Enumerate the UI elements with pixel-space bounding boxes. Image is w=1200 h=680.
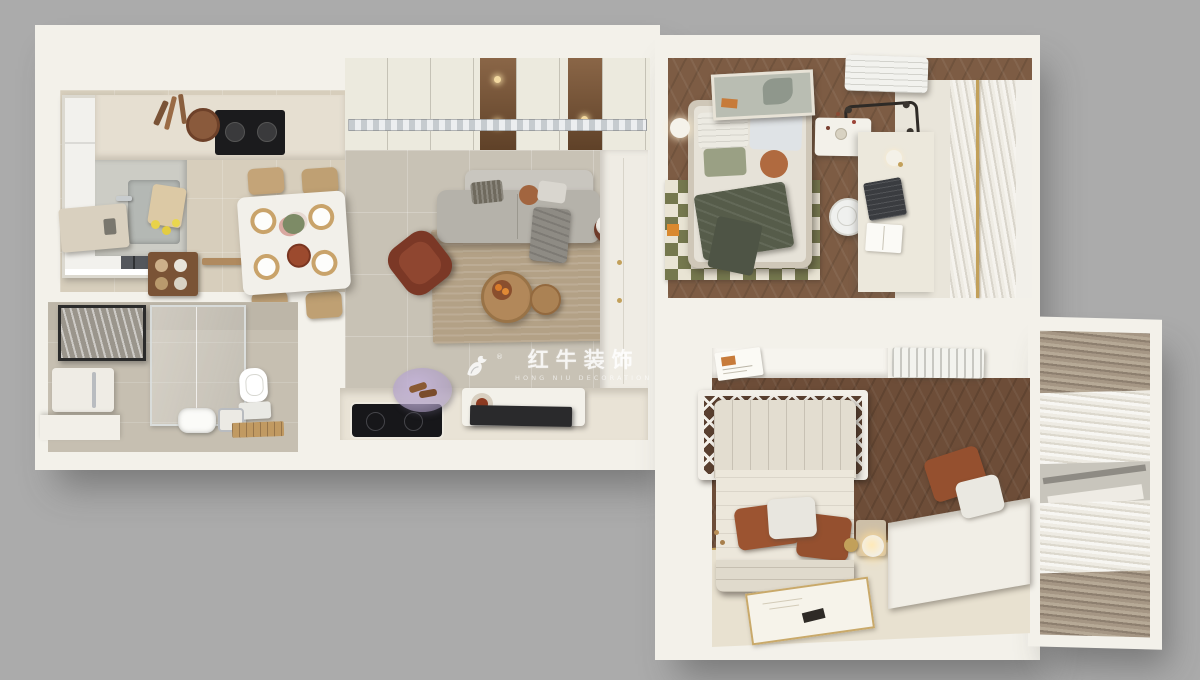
desk bbox=[858, 132, 934, 292]
place-setting bbox=[307, 203, 335, 231]
registered-mark: ® bbox=[496, 353, 503, 361]
light-bulb bbox=[845, 106, 852, 113]
spice-jar bbox=[174, 277, 187, 290]
lemon bbox=[162, 226, 171, 235]
dining-table bbox=[237, 190, 352, 295]
stool-ring bbox=[837, 206, 857, 226]
light-bulb bbox=[903, 101, 910, 108]
induction-zone bbox=[404, 412, 423, 431]
art-accent bbox=[721, 98, 738, 108]
slipper bbox=[419, 388, 438, 398]
rug-accent-square bbox=[667, 224, 679, 236]
toilet-lid-line bbox=[245, 374, 264, 397]
open-book bbox=[865, 223, 903, 253]
food-dish bbox=[286, 243, 312, 269]
bull-logo-icon bbox=[462, 351, 492, 381]
watermark: ® 红牛装饰 HONG NIU DECORATION bbox=[462, 350, 652, 382]
watermark-brand-en: HONG NIU DECORATION bbox=[515, 374, 652, 382]
ac-unit bbox=[844, 55, 928, 94]
plate bbox=[257, 257, 276, 276]
orange-fruit bbox=[502, 288, 509, 295]
spice-rack bbox=[148, 252, 198, 296]
woven-pillow bbox=[470, 179, 504, 204]
cabinet-handle bbox=[617, 260, 622, 265]
lemon bbox=[151, 220, 160, 229]
lamp-arm-joint bbox=[898, 162, 903, 167]
bedside-lamp1 bbox=[670, 118, 690, 138]
faucet bbox=[116, 196, 132, 201]
copper-pot bbox=[186, 108, 220, 142]
burner bbox=[257, 122, 277, 142]
apartment-3d-floorplan-render: ® 红牛装饰 HONG NIU DECORATION bbox=[0, 0, 1200, 680]
rattan-coffee-table bbox=[481, 271, 533, 323]
terracotta-cushion bbox=[760, 150, 788, 178]
white-pillow bbox=[767, 496, 818, 539]
gold-dish bbox=[844, 538, 858, 552]
window-sill bbox=[1016, 80, 1032, 298]
armchair-seat bbox=[394, 237, 446, 289]
vase bbox=[835, 128, 847, 140]
light-pillow bbox=[537, 180, 568, 204]
dried-branch bbox=[714, 530, 719, 535]
bedroom1-curtains bbox=[950, 80, 1016, 298]
wash-basin bbox=[178, 408, 216, 433]
wood-bath-mat bbox=[232, 421, 284, 438]
plate bbox=[254, 211, 273, 230]
magazine-photo bbox=[721, 356, 736, 367]
towel-rail bbox=[92, 372, 96, 408]
heater-display bbox=[103, 218, 116, 235]
burner bbox=[225, 122, 245, 142]
glass-stool bbox=[393, 368, 452, 412]
brass-curtain-rod bbox=[976, 80, 979, 298]
sage-pillow bbox=[703, 147, 746, 177]
lemon bbox=[172, 219, 180, 227]
sofa-seam bbox=[517, 194, 518, 239]
flower-centerpiece bbox=[282, 213, 305, 234]
watermark-brand-cn: 红牛装饰 bbox=[528, 350, 640, 371]
toilet-seat bbox=[239, 367, 269, 402]
bronze-wall-strip bbox=[480, 58, 516, 150]
magazine-line bbox=[723, 370, 747, 374]
green-throw-drape bbox=[707, 216, 763, 276]
bed2-headboard-cushions bbox=[714, 400, 856, 478]
bedside-lamp2-lit bbox=[862, 535, 884, 557]
bathroom-window bbox=[58, 305, 146, 361]
orange-fruit bbox=[495, 284, 502, 291]
tray-item bbox=[802, 608, 826, 623]
dried-branch bbox=[720, 540, 725, 545]
ceiling-light-track bbox=[348, 119, 647, 131]
place-setting bbox=[253, 253, 281, 281]
water-heater bbox=[58, 203, 130, 253]
plate bbox=[312, 207, 331, 226]
branch-berry bbox=[836, 112, 840, 116]
terracotta-pillow bbox=[519, 185, 539, 205]
spice-jar bbox=[155, 277, 168, 290]
branch-berry bbox=[852, 120, 856, 124]
balcony-curtain-sheer bbox=[1040, 390, 1150, 471]
tray-sketch-line bbox=[769, 604, 799, 609]
tray-sketch-line bbox=[762, 598, 802, 605]
wall-light bbox=[494, 76, 501, 83]
tv-panel bbox=[470, 405, 572, 427]
gray-throw-blanket bbox=[529, 206, 572, 263]
place-setting bbox=[250, 207, 278, 235]
dining-chair bbox=[247, 167, 285, 195]
bath-ledge bbox=[40, 415, 120, 440]
spice-jar bbox=[174, 259, 187, 272]
dining-chair bbox=[305, 291, 343, 319]
plate bbox=[315, 253, 334, 272]
place-setting bbox=[311, 249, 339, 277]
rattan-side-table bbox=[530, 284, 561, 315]
glass-seam bbox=[196, 307, 197, 420]
magazine-line bbox=[723, 365, 753, 370]
branch-berry bbox=[826, 126, 830, 130]
wall-art bbox=[711, 69, 815, 120]
bed1-frame bbox=[688, 100, 812, 268]
radiator-unit bbox=[892, 347, 985, 379]
laptop bbox=[863, 177, 907, 221]
cabinet-handle bbox=[617, 298, 622, 303]
bronze-wall-strip bbox=[568, 58, 602, 150]
window-frame-bar bbox=[1043, 464, 1147, 484]
gas-cooktop bbox=[215, 110, 285, 155]
art-shape bbox=[762, 77, 793, 105]
book-spine bbox=[882, 226, 885, 250]
induction-zone bbox=[366, 412, 385, 431]
fruit-plate bbox=[492, 280, 512, 300]
spice-jar bbox=[155, 259, 168, 272]
balcony-curtain-taupe bbox=[1040, 570, 1150, 637]
bath-vanity bbox=[52, 368, 114, 412]
balcony-curtain-sheer bbox=[1040, 500, 1150, 581]
balcony-opening bbox=[1040, 331, 1150, 638]
